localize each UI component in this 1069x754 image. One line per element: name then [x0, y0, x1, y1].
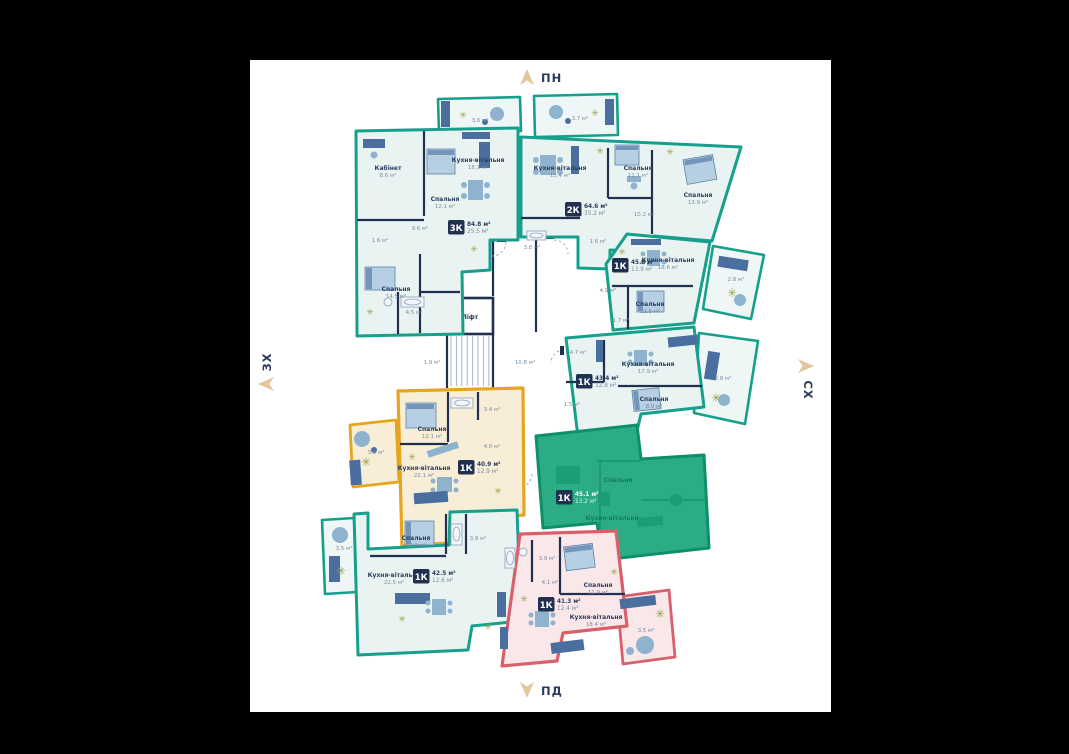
chair-icon: [448, 601, 453, 606]
apartment-area-total: 45.1 м²: [575, 491, 599, 498]
apartment-1k-mid-badge: 1К 43.4 м² 12.8 м²: [576, 374, 619, 389]
apartment-area-total: 41.3 м²: [557, 598, 581, 605]
apartment-1k-pink-badge: 1К 41.3 м² 12.4 м²: [538, 597, 581, 612]
desk-icon: [363, 139, 385, 148]
chair-icon: [461, 193, 467, 199]
room-area: 9.6 м²: [412, 225, 429, 232]
apartment-2k-badge: 2К 64.6 м² 35.2 м²: [565, 202, 608, 217]
room-name: Кухня-вітальня: [368, 572, 421, 579]
sofa-icon: [395, 593, 430, 604]
room-area: 17.9 м²: [638, 368, 658, 375]
room-area: 18.4 м²: [586, 621, 606, 628]
apartment-type: 1К: [415, 573, 428, 583]
apartment-area-living: 25.5 м²: [467, 228, 488, 235]
apartment-type: 1К: [460, 464, 473, 474]
door-leaf: [560, 346, 564, 355]
chair-icon: [662, 252, 667, 257]
pillow-icon: [366, 268, 372, 289]
plant-icon: ✳: [618, 248, 626, 258]
plant-icon: ✳: [596, 147, 604, 157]
room-area: 18.1 м²: [468, 164, 488, 171]
plant-icon: ✳: [591, 109, 599, 119]
room-name: Кухня-вітальня: [534, 165, 587, 172]
floor-plan: ПН ПД ЗХ СХ Ліфт 1.9 м² 10.8 м²: [0, 0, 1069, 754]
room-area: 12.1 м²: [422, 433, 442, 440]
balcony-stool-icon: [626, 647, 634, 655]
washer-icon: [519, 548, 527, 556]
plant-icon: ✳: [494, 487, 502, 497]
balcony-top-right: ✳ 3.7 м²: [534, 94, 618, 137]
chair-icon: [529, 621, 534, 626]
bed-group: [683, 155, 717, 185]
plant-icon: ✳: [666, 148, 674, 158]
chair-icon: [484, 193, 490, 199]
room-area: 15.4 м²: [550, 172, 570, 179]
room-name: Кухня-вітальня: [398, 465, 451, 472]
balcony-area: 2.8 м²: [715, 375, 732, 382]
plant-icon: ✳: [361, 455, 371, 469]
balcony-table-icon: [332, 527, 348, 543]
dining-table-icon: [437, 477, 452, 492]
apartment-1k-sold-badge: 1К 45.1 м² 13.2 м²: [556, 490, 599, 505]
kitchen-counter-icon: [500, 627, 508, 649]
compass-south-label: ПД: [541, 684, 563, 698]
room-area: 4.5 м²: [406, 309, 423, 316]
chair-icon: [426, 609, 431, 614]
compass-north-label: ПН: [541, 71, 562, 85]
plant-icon: ✳: [336, 564, 346, 578]
balcony-area: 3.5 м²: [638, 627, 655, 634]
apartment-type: 1К: [540, 601, 553, 611]
plant-icon: ✳: [520, 595, 528, 605]
room-area: 11.9 м²: [588, 589, 608, 596]
plant-icon: ✳: [470, 245, 478, 255]
chair-icon: [454, 479, 459, 484]
room-area: 4.0 м²: [484, 443, 501, 450]
bed-icon: [556, 466, 580, 484]
apartment-type: 1К: [578, 378, 591, 388]
apartment-type: 1К: [614, 262, 627, 272]
kitchen-counter-icon: [596, 340, 603, 362]
plant-icon: ✳: [366, 308, 374, 318]
apartment-area-living: 13.2 м²: [575, 498, 596, 505]
balcony-table-icon: [490, 107, 504, 121]
apartment-area-total: 64.6 м²: [584, 203, 608, 210]
room-area: 1.5 м²: [564, 401, 581, 408]
room-area: 8.9 м²: [646, 403, 663, 410]
chair-icon: [551, 613, 556, 618]
apartment-area-living: 12.8 м²: [595, 382, 616, 389]
plant-icon: ✳: [610, 568, 618, 578]
room-name: Кухня-вітальня: [570, 614, 623, 621]
room-area: 1.6 м²: [590, 238, 607, 245]
room-name: Спальня: [684, 192, 713, 199]
plant-icon: ✳: [711, 391, 721, 405]
apartment-1k-bottom-badge: 1К 42.5 м² 12.6 м²: [413, 569, 456, 584]
room-name: Спальня: [584, 582, 613, 589]
dining-table-icon: [535, 611, 549, 627]
room-area: 3.8 м²: [524, 244, 541, 251]
room-area: 22.5 м²: [384, 579, 404, 586]
room-name: Спальня: [402, 535, 431, 542]
dining-table-icon: [432, 599, 446, 615]
plant-icon: ✳: [655, 607, 665, 621]
chair-icon: [426, 601, 431, 606]
room-name: Кабінет: [375, 165, 402, 172]
balcony-top-right-area: 3.7 м²: [572, 115, 589, 122]
compass-west-label: ЗХ: [260, 352, 274, 371]
apartment-area-total: 45.8 м²: [631, 259, 655, 266]
chair-icon: [484, 182, 490, 188]
apartment-area-living: 13.9 м²: [631, 266, 652, 273]
apartment-type: 2К: [567, 206, 580, 216]
chair-icon: [454, 488, 459, 493]
apartment-area-living: 12.9 м²: [477, 468, 498, 475]
balcony-table-icon: [636, 636, 654, 654]
pillow-icon: [407, 404, 434, 409]
chair-icon: [628, 352, 633, 357]
room-area: 4.9 м²: [600, 287, 617, 294]
chair-icon: [448, 609, 453, 614]
kitchen-counter-icon: [631, 239, 661, 245]
hall-small-area: 1.9 м²: [424, 359, 441, 366]
room-area: 8.6 м²: [380, 172, 397, 179]
balcony-table-icon: [354, 431, 370, 447]
apartment-type: 1К: [558, 494, 571, 504]
dining-table-icon: [468, 180, 483, 200]
apartment-area-total: 43.4 м²: [595, 375, 619, 382]
hall-area: 10.8 м²: [515, 359, 535, 366]
dining-table-icon: [598, 492, 610, 506]
room-area: 12.5 м²: [640, 308, 660, 315]
room-name: Спальня: [640, 396, 669, 403]
room-area: 18.6 м²: [658, 264, 678, 271]
plant-icon: ✳: [459, 111, 467, 121]
balcony-area: 3.5 м²: [368, 449, 385, 456]
apartment-1k-right-badge: 1К 45.8 м² 13.9 м²: [612, 258, 655, 273]
apartment-area-living: 12.6 м²: [432, 577, 453, 584]
plant-icon: ✳: [727, 286, 737, 300]
apartment-area-total: 40.9 м²: [477, 461, 501, 468]
balcony-bench-icon: [441, 101, 450, 127]
room-area: 12.1 м²: [435, 203, 455, 210]
apartment-area-total: 42.5 м²: [432, 570, 456, 577]
balcony-table-icon: [549, 105, 563, 119]
balcony-top-left-area: 3.6 м²: [472, 117, 489, 124]
balcony-bench-icon: [605, 99, 614, 125]
chair-icon: [631, 183, 638, 190]
room-name: Спальня: [382, 286, 411, 293]
room-area: 3.9 м²: [470, 535, 487, 542]
kitchen-counter-icon: [462, 132, 490, 139]
room-area: 3.9 м²: [539, 555, 556, 562]
chair-icon: [529, 613, 534, 618]
plant-icon: ✳: [484, 623, 492, 633]
floor-plan-page: ПН ПД ЗХ СХ Ліфт 1.9 м² 10.8 м²: [0, 0, 1069, 754]
chair-icon: [431, 488, 436, 493]
room-area: 1.7 м²: [613, 317, 630, 324]
chair-icon: [533, 157, 539, 163]
chair-icon: [649, 352, 654, 357]
room-area: 4.1 м²: [542, 579, 559, 586]
apartment-3k-badge: 3К 84.8 м² 25.5 м²: [448, 220, 491, 235]
room-area: 14.5 м²: [386, 293, 406, 300]
room-name: Кухня-вітальня: [622, 361, 675, 368]
chair-icon: [557, 157, 563, 163]
chair-icon: [551, 621, 556, 626]
balcony-area: 2.8 м²: [728, 276, 745, 283]
plant-icon: ✳: [408, 453, 416, 463]
chair-icon: [431, 479, 436, 484]
chair-icon: [371, 152, 378, 159]
apartment-area-total: 84.8 м²: [467, 221, 491, 228]
balcony-stool-icon: [565, 118, 571, 124]
apartment-type: 3К: [450, 224, 463, 234]
pillow-icon: [616, 146, 638, 150]
room-area: 4.7 м²: [570, 349, 587, 356]
room-area: 1.6 м²: [372, 237, 389, 244]
bed-group: [564, 543, 596, 570]
apartment-area-living: 35.2 м²: [584, 210, 605, 217]
balcony-area: 3.5 м²: [336, 545, 353, 552]
room-area: 10.2 м²: [634, 211, 654, 218]
apartment-1k-yellow-badge: 1К 40.9 м² 12.9 м²: [458, 460, 501, 475]
room-area: 12.1 м²: [406, 542, 426, 549]
compass-east-label: СХ: [801, 380, 815, 399]
plant-icon: ✳: [398, 615, 406, 625]
room-area: 22.1 м²: [414, 472, 434, 479]
room-area: 3.4 м²: [484, 406, 501, 413]
room-name: Спальня: [418, 426, 447, 433]
room-area: 11.1 м²: [628, 172, 648, 179]
room-area: 13.9 м²: [688, 199, 708, 206]
room-name: Спальня: [604, 477, 633, 484]
room-name: Спальня: [636, 301, 665, 308]
room-name: Спальня: [624, 165, 653, 172]
room-name: Спальня: [431, 196, 460, 203]
pillow-icon: [428, 150, 454, 155]
chair-icon: [641, 252, 646, 257]
room-name: Кухня-вітальня: [586, 515, 639, 522]
chair-icon: [461, 182, 467, 188]
lift-label: Ліфт: [462, 314, 479, 321]
apartment-area-living: 12.4 м²: [557, 605, 578, 612]
balcony-table-icon: [670, 494, 682, 506]
kitchen-counter-icon: [497, 592, 506, 617]
room-name: Кухня-вітальня: [452, 157, 505, 164]
